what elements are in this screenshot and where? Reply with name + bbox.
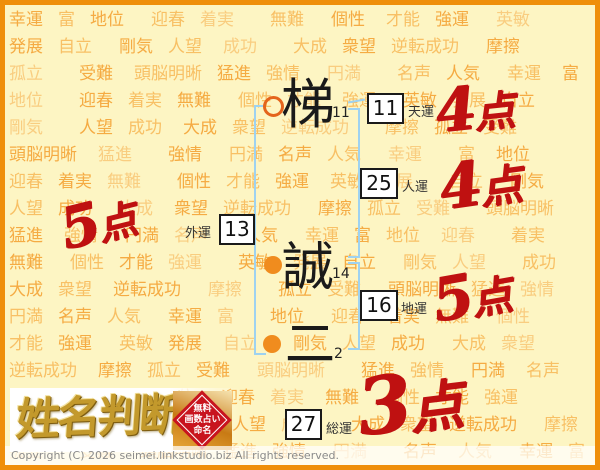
background-word: 才能 xyxy=(9,331,43,358)
heaven-luck-score-number: 4 xyxy=(432,73,477,146)
background-word: 衆望 xyxy=(58,277,92,304)
background-word: 富 xyxy=(58,7,75,34)
background-word: 無難 xyxy=(9,250,43,277)
outer-luck-value-box: 13 xyxy=(219,214,255,245)
stroke-count-3: 2 xyxy=(334,346,343,362)
background-word: 摩擦 xyxy=(98,358,132,385)
background-word: 富 xyxy=(217,304,234,331)
site-logo[interactable]: 姓名判断 xyxy=(15,393,182,443)
background-word: 迎春 xyxy=(79,466,113,469)
background-word: 衆望 xyxy=(501,331,535,358)
background-word: 逆転成功 xyxy=(113,277,181,304)
background-word: 孤立 xyxy=(9,61,43,88)
background-word: 幸運 xyxy=(9,7,43,34)
background-word: 猛進 xyxy=(9,223,43,250)
background-word: 迎春 xyxy=(441,223,475,250)
badge-line-3: 命名 xyxy=(173,426,232,437)
background-word: 円満 xyxy=(9,304,43,331)
background-word: 無難 xyxy=(270,7,304,34)
background-word: 自立 xyxy=(223,331,257,358)
stroke-count-1: 11 xyxy=(332,105,350,121)
heaven-luck-score: 4点 xyxy=(432,69,515,146)
background-word: 才能 xyxy=(386,7,420,34)
background-word: 衆望 xyxy=(342,34,376,61)
background-word: 着実 xyxy=(270,385,304,412)
background-word: 成功 xyxy=(391,331,425,358)
background-word: 個性 xyxy=(232,466,266,469)
background-word: 幸運 xyxy=(168,304,202,331)
background-word: 剛気 xyxy=(9,115,43,142)
earth-luck-label: 地運 xyxy=(401,298,427,317)
background-word: 英敏 xyxy=(119,331,153,358)
site-logo-band: 姓名判断 無料 画数占い 命名 xyxy=(10,388,240,452)
background-word: 個性 xyxy=(331,7,365,34)
background-word: 摩擦 xyxy=(486,34,520,61)
background-word: 富 xyxy=(562,61,579,88)
outer-luck-bracket xyxy=(254,105,266,355)
background-word: 名声 xyxy=(278,142,312,169)
earth-luck-value-box: 16 xyxy=(360,290,398,321)
total-luck-label: 総運 xyxy=(326,418,352,437)
earth-luck-score: 5点 xyxy=(427,254,514,335)
heaven-luck-label: 天運 xyxy=(408,101,434,120)
background-word: 地位 xyxy=(9,88,43,115)
background-word: 摩擦 xyxy=(318,196,352,223)
background-word: 円満 xyxy=(471,358,505,385)
person-luck-score-unit: 点 xyxy=(476,160,522,215)
heaven-luck-score-unit: 点 xyxy=(471,86,514,138)
background-word: 幸運 xyxy=(507,61,541,88)
background-word: 摩擦 xyxy=(544,412,578,439)
name-char-1: 梯 xyxy=(281,78,335,132)
background-word: 地位 xyxy=(9,466,43,469)
background-word: 強運 xyxy=(484,385,518,412)
background-word: 大成 xyxy=(293,34,327,61)
background-word: 名声 xyxy=(526,358,560,385)
background-word: 人望 xyxy=(9,196,43,223)
background-word: 強情 xyxy=(520,277,554,304)
background-word: 英敏 xyxy=(496,7,530,34)
background-word: 孤立 xyxy=(147,358,181,385)
total-luck-score-unit: 点 xyxy=(405,372,464,442)
seimei-handan-result-page: 幸運富地位迎春着実無難個性才能強運英敏発展自立剛気人望成功大成衆望逆転成功摩擦孤… xyxy=(0,0,600,470)
background-word: 猛進 xyxy=(98,142,132,169)
background-word: 個性 xyxy=(177,169,211,196)
total-luck-score: 3点 xyxy=(352,351,465,454)
background-word: 才能 xyxy=(119,250,153,277)
total-luck-value-box: 27 xyxy=(285,409,322,440)
background-word: 成功 xyxy=(223,34,257,61)
background-word: 英敏 xyxy=(412,466,446,469)
background-word: 人望 xyxy=(79,115,113,142)
background-word: 幸運 xyxy=(388,142,422,169)
background-word: 剛気 xyxy=(119,34,153,61)
name-char-2: 誠 xyxy=(282,242,334,294)
background-word: 強運 xyxy=(168,250,202,277)
background-word: 迎春 xyxy=(151,7,185,34)
person-luck-label: 人運 xyxy=(402,176,428,195)
background-word: 強運 xyxy=(435,7,469,34)
background-word: 着実 xyxy=(511,223,545,250)
background-word: 発展 xyxy=(461,466,495,469)
background-word: 受難 xyxy=(79,61,113,88)
background-word: 自立 xyxy=(58,34,92,61)
badge-line-2: 画数占い xyxy=(173,415,232,426)
person-luck-bracket xyxy=(348,108,360,258)
background-word: 成功 xyxy=(522,250,556,277)
background-word: 地位 xyxy=(90,7,124,34)
background-word: 人望 xyxy=(168,34,202,61)
background-word: 大成 xyxy=(183,115,217,142)
background-word: 自立 xyxy=(510,466,544,469)
person-luck-value-box: 25 xyxy=(360,168,398,199)
background-word: 大成 xyxy=(452,331,486,358)
background-word: 地位 xyxy=(386,223,420,250)
background-word: 無難 xyxy=(177,466,211,469)
heaven-luck-value-box: 11 xyxy=(367,93,404,124)
given-char-marker-2 xyxy=(263,335,281,353)
name-char-3: 二 xyxy=(285,319,335,369)
background-word: 発展 xyxy=(168,331,202,358)
background-word: 人気 xyxy=(107,304,141,331)
background-word: 逆転成功 xyxy=(391,34,459,61)
background-word: 迎春 xyxy=(9,169,43,196)
total-luck-score-number: 3 xyxy=(352,357,414,454)
background-word: 成功 xyxy=(128,115,162,142)
background-word: 強情 xyxy=(168,142,202,169)
background-word: 大成 xyxy=(9,277,43,304)
background-word: 名声 xyxy=(58,304,92,331)
earth-luck-score-unit: 点 xyxy=(467,271,513,325)
background-word: 逆転成功 xyxy=(9,358,77,385)
background-word: 孤立 xyxy=(367,196,401,223)
person-luck-score: 4点 xyxy=(434,142,523,224)
outer-luck-label: 外運 xyxy=(185,222,211,241)
background-word: 摩擦 xyxy=(208,277,242,304)
background-word: 衆望 xyxy=(174,196,208,223)
background-word: 強運 xyxy=(275,169,309,196)
free-naming-badge[interactable]: 無料 画数占い 命名 xyxy=(173,391,232,450)
background-word: 頭脳明晰 xyxy=(9,142,77,169)
background-word: 無難 xyxy=(325,385,359,412)
stroke-count-2: 14 xyxy=(332,266,350,282)
background-word: 発展 xyxy=(9,34,43,61)
background-word: 頭脳明晰 xyxy=(134,61,202,88)
background-word: 着実 xyxy=(128,466,162,469)
background-word: 強運 xyxy=(58,331,92,358)
badge-text: 無料 画数占い 命名 xyxy=(173,404,232,437)
badge-line-1: 無料 xyxy=(173,404,232,415)
background-word: 受難 xyxy=(196,358,230,385)
copyright-text: Copyright (C) 2026 seimei.linkstudio.biz… xyxy=(5,446,600,465)
background-word: 才能 xyxy=(281,466,315,469)
background-word: 名声 xyxy=(397,61,431,88)
background-word: 猛進 xyxy=(217,61,251,88)
background-word: 強運 xyxy=(351,466,385,469)
background-word: 迎春 xyxy=(79,88,113,115)
background-word: 着実 xyxy=(128,88,162,115)
background-word: 着実 xyxy=(200,7,234,34)
given-char-marker-1 xyxy=(264,256,282,274)
background-word: 無難 xyxy=(177,88,211,115)
